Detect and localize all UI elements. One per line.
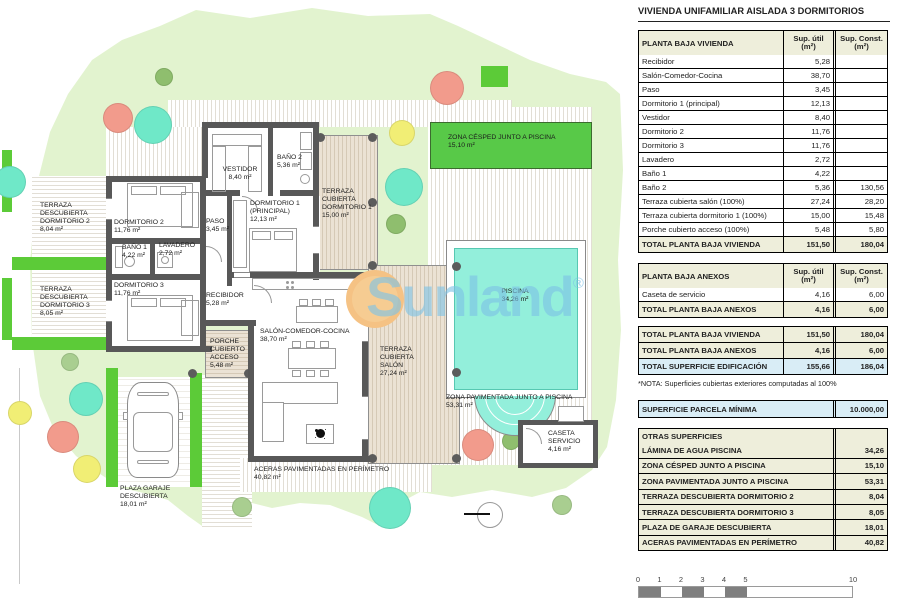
pillow-icon — [274, 231, 293, 240]
table-cell: PLAZA DE GARAJE DESCUBIERTA — [639, 522, 833, 533]
label-text: TERRAZA DESCUBIERTA DORMITORIO 3 — [40, 286, 90, 309]
total-util: 151,50 — [783, 237, 833, 252]
sliding-door — [362, 396, 368, 440]
table-cell: Dormitorio 3 — [639, 140, 783, 151]
room-label-terraza-cub-salon: TERRAZA CUBIERTA SALÓN27,24 m² — [380, 346, 414, 378]
table-cell: 155,66 — [783, 359, 833, 374]
table-row: PLAZA DE GARAJE DESCUBIERTA18,01 — [639, 519, 887, 534]
table-row: LÁMINA DE AGUA PISCINA34,26 — [639, 443, 887, 457]
site-plan: Sunland® TERRAZA DESCUBIERTA DORMITORIO … — [0, 0, 630, 600]
table-row: Caseta de servicio4,166,00 — [639, 288, 887, 301]
scale-tick: 2 — [679, 575, 683, 584]
pillow-icon — [131, 186, 157, 195]
label-area: 8,40 m² — [218, 174, 262, 182]
table-cell: ACERAS PAVIMENTADAS EN PERÍMETRO — [639, 537, 833, 548]
scale-bar-segment — [639, 587, 661, 597]
table-cell: Caseta de servicio — [639, 289, 783, 300]
scale-tick: 10 — [849, 575, 857, 584]
wardrobe-icon — [181, 192, 199, 228]
label-text: ZONA PAVIMENTADA JUNTO A PISCINA — [446, 394, 572, 401]
door-opening — [234, 272, 250, 278]
label-area: 3,45 m² — [206, 226, 229, 234]
parcela-label: SUPERFICIE PARCELA MÍNIMA — [639, 404, 833, 415]
table-cell: 2,72 — [783, 153, 833, 166]
table-row: TOTAL SUPERFICIE EDIFICACIÓN155,66186,04 — [639, 358, 887, 374]
label-text: LAVADERO — [159, 242, 195, 249]
table-cell: 8,04 — [833, 490, 887, 504]
label-text: DORMITORIO 3 — [114, 282, 164, 289]
room-label-terraza-desc-dorm3: TERRAZA DESCUBIERTA DORMITORIO 38,05 m² — [40, 286, 90, 318]
room-label-aceras: ACERAS PAVIMENTADAS EN PERÍMETRO40,82 m² — [254, 466, 389, 482]
wall — [248, 320, 254, 462]
label-text: VESTIDOR — [223, 166, 258, 173]
table-row: Vestidor8,40 — [639, 110, 887, 124]
table-cell — [833, 69, 887, 82]
room-label-piscina: PISCINA34,26 m² — [487, 288, 543, 304]
room-label-bano2: BAÑO 25,36 m² — [277, 154, 302, 170]
table-cell: 8,05 — [833, 505, 887, 519]
table-cell: 3,45 — [783, 83, 833, 96]
sofa-icon — [262, 402, 284, 442]
col-header-const: Sup. Const. (m²) — [833, 31, 887, 55]
label-area: 5,28 m² — [206, 300, 244, 308]
sliding-door — [362, 302, 368, 342]
label-area: 8,04 m² — [40, 226, 90, 234]
tree-icon — [552, 495, 572, 515]
table-body: Caseta de servicio4,166,00 — [639, 288, 887, 301]
dining-table — [288, 348, 336, 369]
table-cell: 6,00 — [833, 288, 887, 301]
label-area: 34,26 m² — [487, 296, 543, 304]
wall — [313, 122, 319, 226]
label-area: 11,76 m² — [114, 227, 164, 235]
north-compass-icon — [477, 502, 503, 528]
room-label-recibidor: RECIBIDOR5,28 m² — [206, 292, 244, 308]
table-row: TOTAL PLANTA BAJA ANEXOS4,166,00 — [639, 342, 887, 358]
wall — [106, 274, 206, 280]
table-cell: Terraza cubierta dormitorio 1 (100%) — [639, 210, 783, 221]
table-cell: ZONA CÉSPED JUNTO A PISCINA — [639, 460, 833, 471]
table-row: TERRAZA DESCUBIERTA DORMITORIO 28,04 — [639, 489, 887, 504]
tree-icon — [430, 71, 464, 105]
table-cell — [833, 153, 887, 166]
table-body: Recibidor5,28Salón-Comedor-Cocina38,70Pa… — [639, 55, 887, 236]
table-row: Baño 14,22 — [639, 166, 887, 180]
hedge-strip — [106, 368, 118, 487]
tree-icon — [232, 497, 252, 517]
table-cell: 38,70 — [783, 69, 833, 82]
label-area: 53,31 m² — [446, 402, 572, 410]
table-cell — [833, 125, 887, 138]
car-mirror — [123, 412, 128, 420]
chair-icon — [306, 370, 315, 377]
table-header: OTRAS SUPERFICIES — [639, 431, 833, 442]
table-cell: 12,13 — [783, 97, 833, 110]
pool — [454, 248, 578, 390]
scale-tick: 1 — [657, 575, 661, 584]
wall — [248, 456, 370, 462]
hedge-strip — [481, 66, 508, 87]
label-area: 5,48 m² — [210, 362, 245, 370]
table-cell: 28,20 — [833, 195, 887, 208]
table-cell: ZONA PAVIMENTADA JUNTO A PISCINA — [639, 476, 833, 487]
label-text: PISCINA — [501, 288, 528, 295]
table-cell: TOTAL PLANTA BAJA ANEXOS — [639, 345, 783, 356]
hedge-strip — [190, 373, 202, 487]
tree-icon — [73, 455, 101, 483]
table-cell: TERRAZA DESCUBIERTA DORMITORIO 2 — [639, 491, 833, 502]
deck-post — [452, 454, 461, 463]
table-row: Baño 25,36130,56 — [639, 180, 887, 194]
table-cell: 27,24 — [783, 195, 833, 208]
table-cell: 53,31 — [833, 474, 887, 488]
deck-post — [452, 368, 461, 377]
table-row: Dormitorio 211,76 — [639, 124, 887, 138]
room-label-plaza-garaje: PLAZA GARAJE DESCUBIERTA18,01 m² — [120, 485, 170, 509]
scale-bar-segment — [725, 587, 747, 597]
table-planta-baja-anexos: PLANTA BAJA ANEXOS Sup. útil (m²) Sup. C… — [638, 263, 888, 318]
table-row: Terraza cubierta salón (100%)27,2428,20 — [639, 194, 887, 208]
table-row: ACERAS PAVIMENTADAS EN PERÍMETRO40,82 — [639, 535, 887, 550]
table-cell: 5,28 — [783, 55, 833, 68]
label-text: DORMITORIO 2 — [114, 219, 164, 226]
page-title: VIVIENDA UNIFAMILIAR AISLADA 3 DORMITORI… — [638, 6, 890, 22]
col-header-util: Sup. útil (m²) — [783, 264, 833, 288]
table-cell: Recibidor — [639, 56, 783, 67]
label-text: ACERAS PAVIMENTADAS EN PERÍMETRO — [254, 466, 389, 473]
car-trunk-line — [137, 460, 169, 464]
kitchen-island — [296, 306, 338, 323]
pillow-icon — [131, 298, 157, 307]
table-cell: Terraza cubierta salón (100%) — [639, 196, 783, 207]
table-row: Dormitorio 1 (principal)12,13 — [639, 96, 887, 110]
table-row: ZONA PAVIMENTADA JUNTO A PISCINA53,31 — [639, 473, 887, 488]
table-otras-superficies: OTRAS SUPERFICIES LÁMINA DE AGUA PISCINA… — [638, 428, 888, 551]
table-cell: Lavadero — [639, 154, 783, 165]
table-row: Dormitorio 311,76 — [639, 138, 887, 152]
room-label-bano1: BAÑO 14,22 m² — [122, 244, 147, 260]
table-cell: Porche cubierto acceso (100%) — [639, 224, 783, 235]
room-label-dormitorio1: DORMITORIO 1 (PRINCIPAL)12,13 m² — [250, 200, 300, 224]
table-cell — [833, 83, 887, 96]
scale-tick-labels: 01234510 — [638, 575, 853, 585]
label-text: RECIBIDOR — [206, 292, 244, 299]
tree-icon — [389, 120, 415, 146]
table-planta-baja-vivienda: PLANTA BAJA VIVIENDA Sup. útil (m²) Sup.… — [638, 30, 888, 253]
wall — [106, 346, 212, 352]
tree-icon — [386, 214, 406, 234]
scale-bar: 01234510 ESCALA GRÁFICA (METROS) — [638, 575, 853, 600]
tree-icon — [385, 168, 423, 206]
tree-icon — [47, 421, 79, 453]
tree-icon — [8, 401, 32, 425]
scale-bar-track — [638, 586, 853, 598]
table-cell: 4,16 — [783, 288, 833, 301]
tree-icon — [69, 382, 103, 416]
tree-icon — [103, 103, 133, 133]
scale-tick: 3 — [700, 575, 704, 584]
table-header-row: PLANTA BAJA VIVIENDA Sup. útil (m²) Sup.… — [639, 31, 887, 55]
empty-cell — [833, 429, 887, 443]
compass-needle-icon — [464, 513, 490, 515]
scale-tick: 4 — [722, 575, 726, 584]
stool-icon — [299, 299, 308, 306]
room-label-dormitorio2: DORMITORIO 211,76 m² — [114, 219, 164, 235]
label-area: 38,70 m² — [260, 336, 350, 344]
label-area: 5,36 m² — [277, 162, 302, 170]
chair-icon — [320, 370, 329, 377]
table-cell — [833, 167, 887, 180]
col-header-const: Sup. Const. (m²) — [833, 264, 887, 288]
table-cell: 34,26 — [833, 443, 887, 457]
table-cell: 5,80 — [833, 223, 887, 236]
room-label-zona-cesped: ZONA CÉSPED JUNTO A PISCINA15,10 m² — [448, 134, 556, 150]
table-row: ZONA CÉSPED JUNTO A PISCINA15,10 — [639, 458, 887, 473]
terrace-door — [313, 226, 319, 254]
table-cell — [833, 111, 887, 124]
deck-post — [452, 262, 461, 271]
room-label-caseta: CASETA SERVICIO4,16 m² — [548, 430, 580, 454]
table-cell — [833, 55, 887, 68]
window — [106, 300, 112, 322]
plant-icon — [316, 429, 325, 438]
table-cell: TERRAZA DESCUBIERTA DORMITORIO 3 — [639, 507, 833, 518]
table-row: Lavadero2,72 — [639, 152, 887, 166]
table-cell: 15,00 — [783, 209, 833, 222]
parcela-value: 10.000,00 — [833, 401, 887, 417]
room-label-terraza-cub-dorm1: TERRAZA CUBIERTA DORMITORIO 115,00 m² — [322, 188, 372, 220]
label-area: 15,10 m² — [448, 142, 556, 150]
scale-tick: 5 — [743, 575, 747, 584]
porch-post — [188, 369, 197, 378]
note-text: *NOTA: Superficies cubiertas exteriores … — [638, 379, 890, 388]
table-cell: 5,36 — [783, 181, 833, 194]
room-label-salon: SALÓN-COMEDOR-COCINA38,70 m² — [260, 328, 350, 344]
table-cell: TOTAL SUPERFICIE EDIFICACIÓN — [639, 361, 783, 372]
wall — [106, 176, 206, 182]
label-area: 18,01 m² — [120, 501, 170, 509]
table-row: Salón-Comedor-Cocina38,70 — [639, 68, 887, 82]
table-total-row: TOTAL PLANTA BAJA ANEXOS 4,16 6,00 — [639, 301, 887, 317]
wall — [268, 126, 273, 196]
table-cell: Vestidor — [639, 112, 783, 123]
total-const: 180,04 — [833, 237, 887, 252]
table-cell: Paso — [639, 84, 783, 95]
label-area: 8,05 m² — [40, 310, 90, 318]
table-summary: TOTAL PLANTA BAJA VIVIENDA151,50180,04TO… — [638, 326, 888, 375]
table-header-row: OTRAS SUPERFICIES — [639, 429, 887, 443]
toilet-icon — [300, 174, 310, 184]
room-label-zona-pavimentada: ZONA PAVIMENTADA JUNTO A PISCINA53,31 m² — [446, 394, 572, 410]
table-cell: 11,76 — [783, 139, 833, 152]
table-row: SUPERFICIE PARCELA MÍNIMA 10.000,00 — [639, 401, 887, 417]
label-area: 27,24 m² — [380, 370, 414, 378]
table-cell: 18,01 — [833, 520, 887, 534]
label-area: 4,22 m² — [122, 252, 147, 260]
table-cell: 11,76 — [783, 125, 833, 138]
label-text: TERRAZA CUBIERTA SALÓN — [380, 346, 414, 369]
label-text: CASETA SERVICIO — [548, 430, 580, 445]
label-area: 40,82 m² — [254, 474, 389, 482]
wall — [202, 122, 208, 178]
areas-panel: VIVIENDA UNIFAMILIAR AISLADA 3 DORMITORI… — [630, 0, 900, 600]
kitchen-counter — [252, 278, 362, 290]
total-label: TOTAL PLANTA BAJA VIVIENDA — [639, 239, 783, 250]
table-cell: 5,48 — [783, 223, 833, 236]
hedge-strip — [12, 257, 108, 270]
table-cell: Baño 1 — [639, 168, 783, 179]
table-row: Terraza cubierta dormitorio 1 (100%)15,0… — [639, 208, 887, 222]
label-area: 4,16 m² — [548, 446, 580, 454]
sofa-icon — [262, 382, 338, 404]
car-mirror — [178, 412, 183, 420]
label-text: TERRAZA CUBIERTA DORMITORIO 1 — [322, 188, 372, 211]
wall — [202, 122, 319, 128]
table-cell: LÁMINA DE AGUA PISCINA — [639, 445, 833, 456]
stool-icon — [325, 299, 334, 306]
room-label-paso: PASO3,45 m² — [206, 218, 229, 234]
table-cell: 15,48 — [833, 209, 887, 222]
total-util: 4,16 — [783, 302, 833, 317]
table-row: TOTAL PLANTA BAJA VIVIENDA151,50180,04 — [639, 327, 887, 342]
pillow-icon — [252, 231, 271, 240]
table-row: Paso3,45 — [639, 82, 887, 96]
label-area: 15,00 m² — [322, 212, 372, 220]
table-cell — [833, 139, 887, 152]
label-text: PORCHE CUBIERTO ACCESO — [210, 338, 245, 361]
table-cell: Salón-Comedor-Cocina — [639, 70, 783, 81]
label-text: DORMITORIO 1 (PRINCIPAL) — [250, 200, 300, 215]
hedge-strip — [12, 337, 108, 350]
wall — [150, 244, 155, 276]
table-header: PLANTA BAJA VIVIENDA — [639, 38, 783, 49]
table-cell — [833, 97, 887, 110]
deck-post — [368, 261, 377, 270]
col-header-util: Sup. útil (m²) — [783, 31, 833, 55]
room-label-porche: PORCHE CUBIERTO ACCESO5,48 m² — [210, 338, 245, 370]
table-row: TERRAZA DESCUBIERTA DORMITORIO 38,05 — [639, 504, 887, 519]
label-text: PLAZA GARAJE DESCUBIERTA — [120, 485, 170, 500]
table-cell: 186,04 — [833, 359, 887, 374]
table-row: Porche cubierto acceso (100%)5,485,80 — [639, 222, 887, 236]
car-hood-line — [137, 392, 169, 396]
tree-icon — [134, 106, 172, 144]
label-text: ZONA CÉSPED JUNTO A PISCINA — [448, 134, 556, 141]
deck-post — [368, 133, 377, 142]
label-text: TERRAZA DESCUBIERTA DORMITORIO 2 — [40, 202, 90, 225]
label-text: BAÑO 1 — [122, 244, 147, 251]
wardrobe-icon — [181, 300, 199, 336]
label-text: SALÓN-COMEDOR-COCINA — [260, 328, 350, 335]
label-text: BAÑO 2 — [277, 154, 302, 161]
stool-icon — [312, 299, 321, 306]
scale-bar-segment — [682, 587, 704, 597]
table-cell: Baño 2 — [639, 182, 783, 193]
table-parcela: SUPERFICIE PARCELA MÍNIMA 10.000,00 — [638, 400, 888, 418]
table-cell: TOTAL PLANTA BAJA VIVIENDA — [639, 329, 783, 340]
label-area: 2,72 m² — [159, 250, 195, 258]
tree-icon — [155, 68, 173, 86]
chair-icon — [292, 370, 301, 377]
total-const: 6,00 — [833, 302, 887, 317]
wall — [280, 190, 319, 196]
car-roof — [133, 412, 173, 452]
window — [106, 198, 112, 220]
room-label-vestidor: VESTIDOR8,40 m² — [218, 166, 262, 182]
room-label-dormitorio3: DORMITORIO 311,76 m² — [114, 282, 164, 298]
table-cell: Dormitorio 2 — [639, 126, 783, 137]
sink-icon — [300, 132, 312, 150]
table-header: PLANTA BAJA ANEXOS — [639, 271, 783, 282]
table-body: LÁMINA DE AGUA PISCINA34,26ZONA CÉSPED J… — [639, 443, 887, 550]
hedge-strip — [2, 278, 12, 340]
table-cell: Dormitorio 1 (principal) — [639, 98, 783, 109]
table-cell: 15,10 — [833, 459, 887, 473]
table-cell: 151,50 — [783, 327, 833, 342]
architectural-sheet: Sunland® TERRAZA DESCUBIERTA DORMITORIO … — [0, 0, 900, 600]
room-label-lavadero: LAVADERO2,72 m² — [159, 242, 195, 258]
table-cell: 4,16 — [783, 343, 833, 358]
tree-icon — [369, 487, 411, 529]
table-cell: 40,82 — [833, 536, 887, 550]
table-row: Recibidor5,28 — [639, 55, 887, 68]
table-cell: 6,00 — [833, 343, 887, 358]
table-cell: 130,56 — [833, 181, 887, 194]
room-label-terraza-desc-dorm2: TERRAZA DESCUBIERTA DORMITORIO 28,04 m² — [40, 202, 90, 234]
total-label: TOTAL PLANTA BAJA ANEXOS — [639, 304, 783, 315]
table-cell: 4,22 — [783, 167, 833, 180]
tree-icon — [0, 166, 26, 198]
label-text: PASO — [206, 218, 224, 225]
label-area: 11,76 m² — [114, 290, 164, 298]
scale-tick: 0 — [636, 575, 640, 584]
table-cell: 180,04 — [833, 327, 887, 342]
cooktop-icon — [286, 281, 289, 284]
tree-icon — [61, 353, 79, 371]
label-area: 12,13 m² — [250, 216, 300, 224]
table-cell: 8,40 — [783, 111, 833, 124]
table-body: TOTAL PLANTA BAJA VIVIENDA151,50180,04TO… — [639, 327, 887, 374]
wardrobe-icon — [212, 134, 262, 146]
table-header-row: PLANTA BAJA ANEXOS Sup. útil (m²) Sup. C… — [639, 264, 887, 288]
table-total-row: TOTAL PLANTA BAJA VIVIENDA 151,50 180,04 — [639, 236, 887, 252]
